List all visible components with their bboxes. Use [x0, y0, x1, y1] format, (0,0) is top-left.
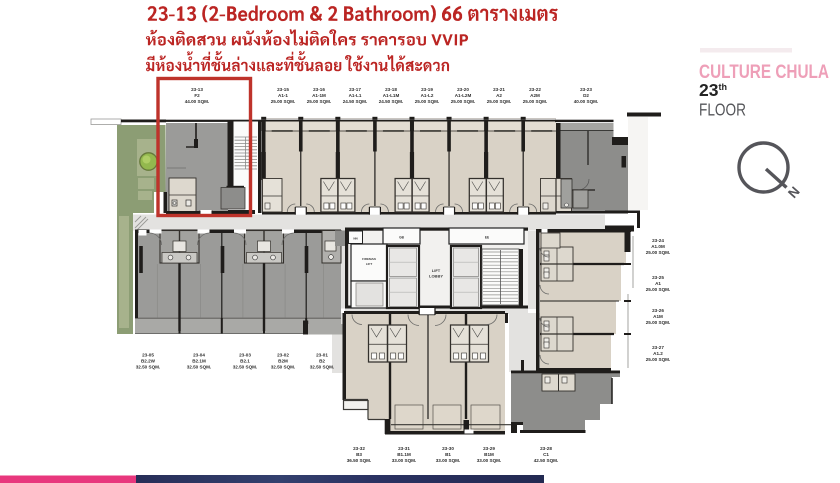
svg-text:B3: B3 — [356, 452, 362, 457]
svg-text:23-18: 23-18 — [385, 87, 397, 92]
svg-text:23-26: 23-26 — [652, 308, 664, 313]
svg-text:23-02: 23-02 — [277, 353, 289, 358]
svg-text:B2.1: B2.1 — [240, 359, 250, 364]
svg-text:25.00 SQM.: 25.00 SQM. — [487, 99, 512, 104]
svg-text:23-05: 23-05 — [142, 353, 154, 358]
svg-text:A1: A1 — [655, 281, 661, 286]
svg-text:23-15: 23-15 — [277, 87, 289, 92]
svg-text:B1M: B1M — [484, 452, 494, 457]
svg-text:A1-L2M: A1-L2M — [455, 93, 472, 98]
svg-text:A1.2: A1.2 — [653, 351, 663, 356]
svg-text:A1-1M: A1-1M — [312, 93, 326, 98]
svg-text:33.00 SQM.: 33.00 SQM. — [392, 458, 417, 463]
svg-text:25.00 SQM.: 25.00 SQM. — [646, 250, 671, 255]
svg-text:33.00 SQM.: 33.00 SQM. — [477, 458, 502, 463]
svg-text:23-30: 23-30 — [442, 446, 454, 451]
svg-text:B2M: B2M — [278, 359, 288, 364]
svg-text:FLOOR: FLOOR — [699, 100, 746, 120]
svg-text:25.00 SQM.: 25.00 SQM. — [307, 99, 332, 104]
svg-text:25.00 SQM.: 25.00 SQM. — [451, 99, 476, 104]
svg-text:32.50 SQM.: 32.50 SQM. — [136, 365, 161, 370]
svg-text:25.00 SQM.: 25.00 SQM. — [646, 287, 671, 292]
svg-text:EE: EE — [485, 236, 489, 240]
svg-text:23-04: 23-04 — [193, 353, 205, 358]
svg-text:A1-L1: A1-L1 — [349, 93, 362, 98]
svg-text:A1-1: A1-1 — [278, 93, 288, 98]
svg-text:25.00 SQM.: 25.00 SQM. — [415, 99, 440, 104]
svg-text:C1: C1 — [543, 452, 549, 457]
svg-text:NN: NN — [353, 237, 357, 241]
svg-text:25.00 SQM.: 25.00 SQM. — [646, 320, 671, 325]
svg-text:LIFT: LIFT — [432, 268, 441, 273]
svg-text:32.50 SQM.: 32.50 SQM. — [271, 365, 296, 370]
svg-text:B1: B1 — [445, 452, 451, 457]
svg-text:23th: 23th — [699, 80, 727, 100]
svg-text:40.00 SQM.: 40.00 SQM. — [574, 99, 599, 104]
svg-text:23-20: 23-20 — [457, 87, 469, 92]
svg-text:23-28: 23-28 — [540, 446, 552, 451]
svg-text:23-25: 23-25 — [652, 275, 664, 280]
svg-text:24.50 SQM.: 24.50 SQM. — [379, 99, 404, 104]
svg-text:32.50 SQM.: 32.50 SQM. — [233, 365, 258, 370]
svg-text:A1M: A1M — [653, 314, 663, 319]
svg-text:CULTURE CHULA: CULTURE CHULA — [699, 61, 829, 83]
svg-text:23-17: 23-17 — [349, 87, 361, 92]
svg-text:B1.1M: B1.1M — [397, 452, 411, 457]
svg-text:33.00 SQM.: 33.00 SQM. — [436, 458, 461, 463]
svg-text:N: N — [785, 184, 803, 201]
svg-text:25.00 SQM.: 25.00 SQM. — [646, 357, 671, 362]
svg-text:23-01: 23-01 — [316, 353, 328, 358]
svg-text:23-27: 23-27 — [652, 345, 664, 350]
svg-text:B2.2W: B2.2W — [141, 359, 156, 364]
svg-text:23-16: 23-16 — [313, 87, 325, 92]
svg-text:23-31: 23-31 — [398, 446, 410, 451]
svg-text:23-23: 23-23 — [580, 87, 592, 92]
svg-text:A1-L1M: A1-L1M — [383, 93, 400, 98]
svg-text:LIFT: LIFT — [366, 262, 372, 266]
svg-text:23-19: 23-19 — [421, 87, 433, 92]
svg-text:GB: GB — [399, 236, 404, 240]
svg-text:D2: D2 — [583, 93, 589, 98]
svg-text:FIREMAN: FIREMAN — [362, 257, 376, 261]
svg-text:36.50 SQM.: 36.50 SQM. — [347, 458, 372, 463]
svg-text:B2: B2 — [319, 359, 325, 364]
svg-text:23-03: 23-03 — [239, 353, 251, 358]
svg-text:25.00 SQM.: 25.00 SQM. — [523, 99, 548, 104]
svg-text:23-32: 23-32 — [353, 446, 365, 451]
svg-text:32.50 SQM.: 32.50 SQM. — [310, 365, 335, 370]
svg-text:A2: A2 — [496, 93, 502, 98]
svg-text:A2M: A2M — [530, 93, 540, 98]
svg-text:42.50 SQM.: 42.50 SQM. — [534, 458, 559, 463]
svg-text:B2.1M: B2.1M — [192, 359, 206, 364]
svg-text:23-29: 23-29 — [483, 446, 495, 451]
svg-text:25.00 SQM.: 25.00 SQM. — [271, 99, 296, 104]
svg-text:23-21: 23-21 — [493, 87, 505, 92]
svg-text:44.00 SQM.: 44.00 SQM. — [185, 99, 210, 104]
svg-text:24.50 SQM.: 24.50 SQM. — [343, 99, 368, 104]
svg-text:A1-L2: A1-L2 — [421, 93, 434, 98]
svg-text:LOBBY: LOBBY — [429, 274, 443, 279]
svg-text:23-24: 23-24 — [652, 238, 664, 243]
svg-text:32.50 SQM.: 32.50 SQM. — [187, 365, 212, 370]
svg-text:A1.0M: A1.0M — [651, 244, 665, 249]
svg-text:F2: F2 — [194, 93, 200, 98]
svg-text:23-22: 23-22 — [529, 87, 541, 92]
svg-text:23-13: 23-13 — [191, 87, 203, 92]
